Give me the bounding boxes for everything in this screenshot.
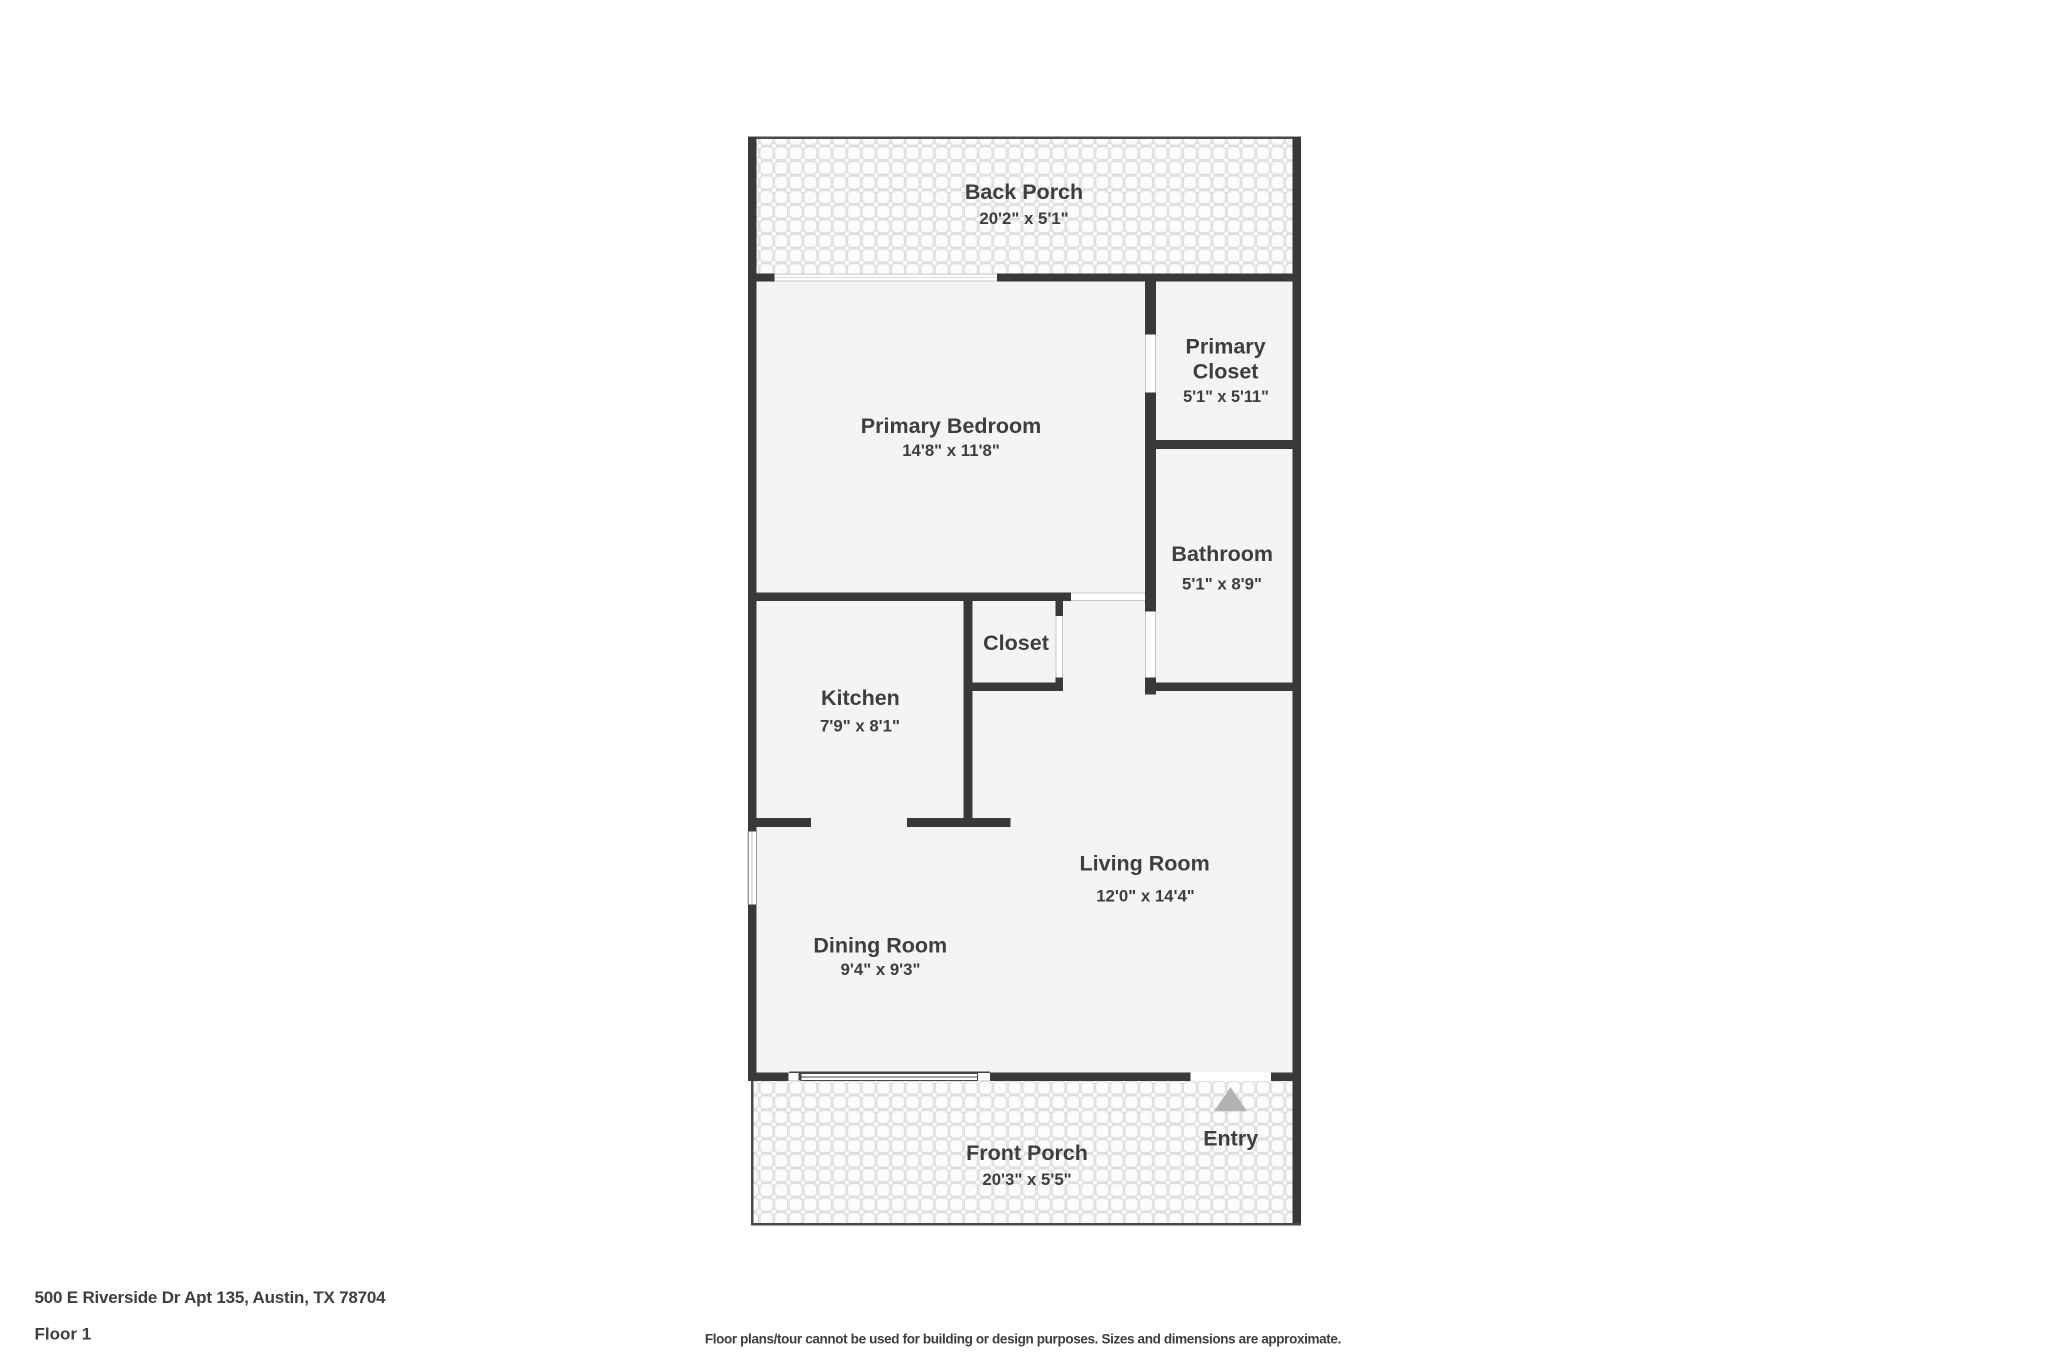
svg-text:Front Porch: Front Porch: [966, 1141, 1088, 1165]
svg-text:9'4" x 9'3": 9'4" x 9'3": [841, 960, 921, 979]
svg-text:20'3" x 5'5": 20'3" x 5'5": [982, 1170, 1071, 1189]
svg-text:20'2" x 5'1": 20'2" x 5'1": [979, 209, 1068, 228]
svg-text:500 E Riverside Dr Apt 135, Au: 500 E Riverside Dr Apt 135, Austin, TX 7…: [35, 1288, 387, 1307]
svg-text:Closet: Closet: [1193, 359, 1259, 383]
svg-text:Living Room: Living Room: [1080, 851, 1210, 875]
svg-text:Kitchen: Kitchen: [821, 686, 900, 710]
svg-text:Bathroom: Bathroom: [1171, 542, 1273, 566]
svg-text:Primary: Primary: [1186, 334, 1266, 358]
svg-text:Back Porch: Back Porch: [965, 180, 1083, 204]
svg-text:Closet: Closet: [983, 631, 1049, 655]
svg-text:5'1" x 5'11": 5'1" x 5'11": [1183, 388, 1269, 406]
svg-text:Primary Bedroom: Primary Bedroom: [861, 414, 1041, 438]
svg-text:Entry: Entry: [1203, 1126, 1258, 1150]
svg-text:7'9" x 8'1": 7'9" x 8'1": [820, 717, 900, 736]
svg-text:Floor 1: Floor 1: [35, 1325, 92, 1344]
svg-text:5'1" x 8'9": 5'1" x 8'9": [1182, 575, 1262, 594]
svg-text:Floor plans/tour cannot be use: Floor plans/tour cannot be used for buil…: [705, 1332, 1341, 1347]
svg-text:12'0" x 14'4": 12'0" x 14'4": [1096, 886, 1195, 905]
svg-text:Dining Room: Dining Room: [813, 933, 947, 957]
svg-text:14'8" x 11'8": 14'8" x 11'8": [902, 441, 1000, 460]
